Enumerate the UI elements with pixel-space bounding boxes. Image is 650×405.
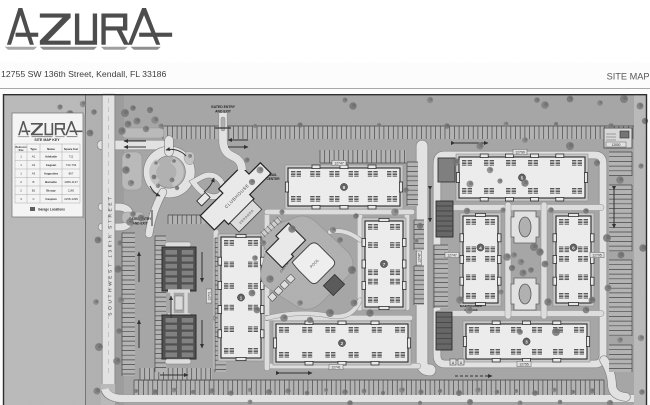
svg-text:SITE MAP: SITE MAP [607,72,650,82]
svg-text:12755 SW 136th Street, Kendall: 12755 SW 136th Street, Kendall, FL 33186 [1,69,167,79]
